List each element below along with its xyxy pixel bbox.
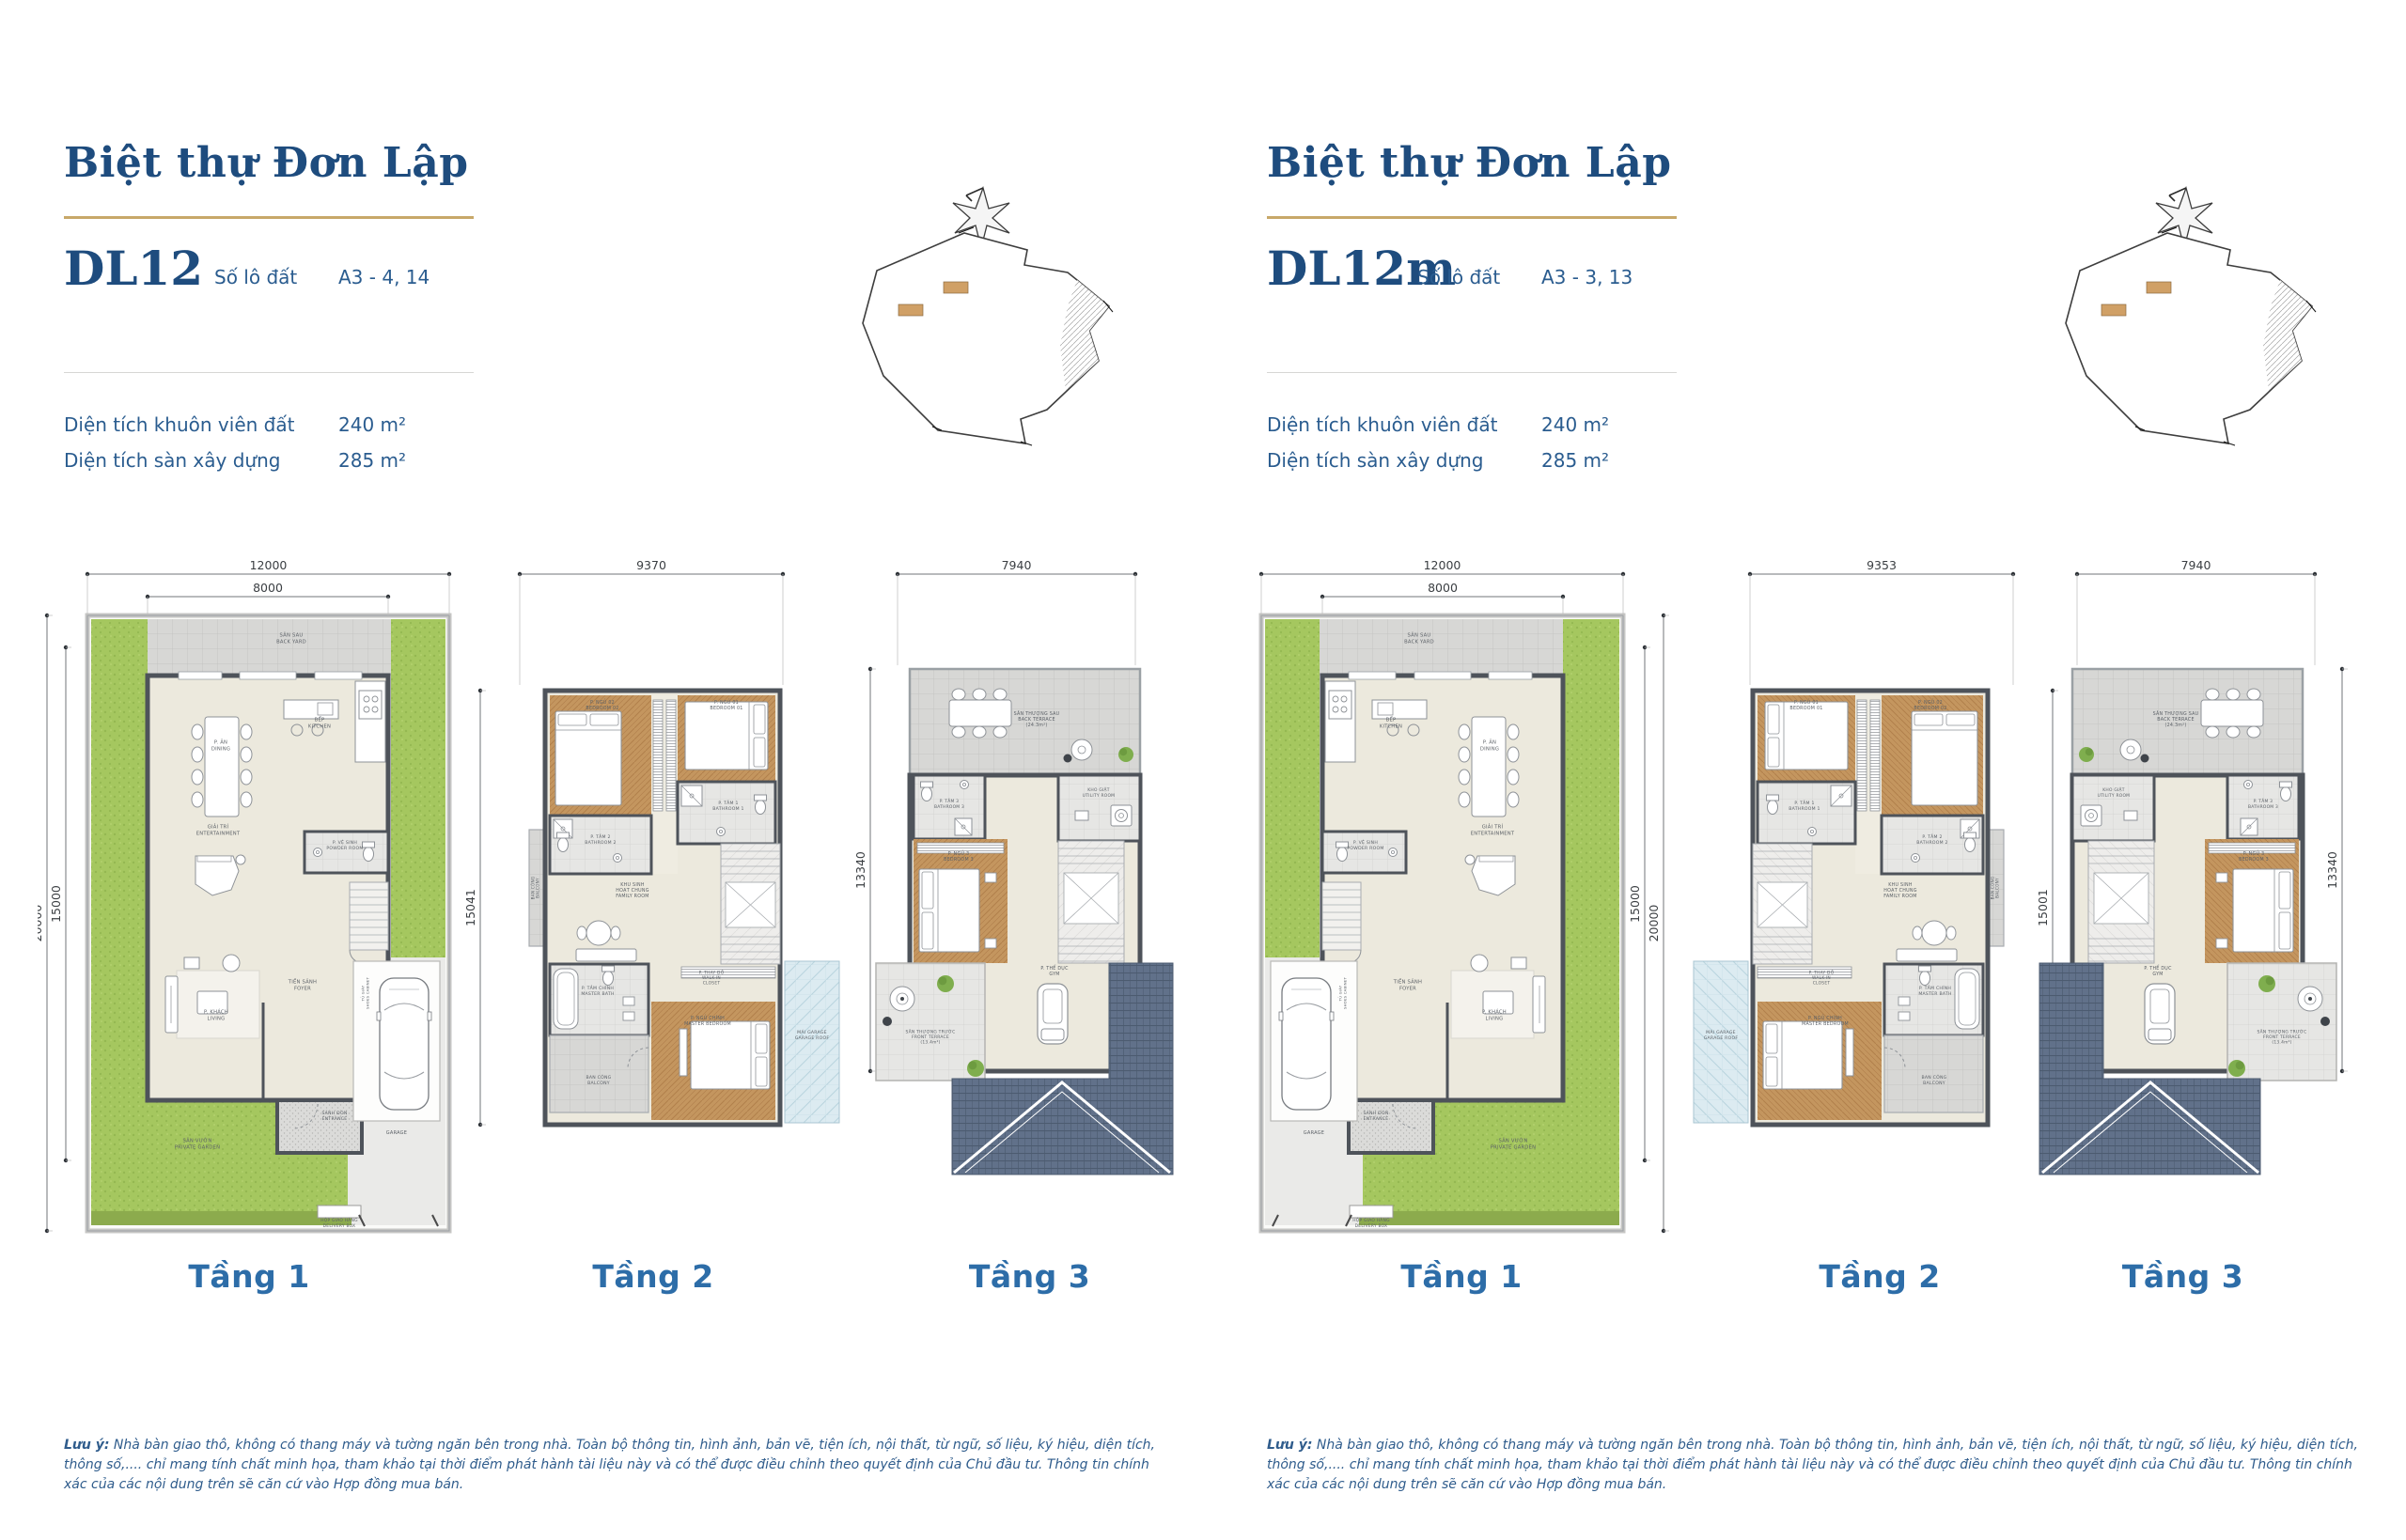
panel-title: Biệt thự Đơn Lập [1267,139,1672,187]
land-area-label: Diện tích khuôn viên đất [1267,413,1497,436]
room-label: P. TẮM CHÍNHMASTER BATH [1918,984,1951,997]
room-label: P. NGỦ 3BEDROOM 3 [944,849,974,863]
room-label: P. NGỦ CHÍNHMASTER BEDROOM [684,1014,731,1027]
lot-number-value: A3 - 3, 13 [1541,266,1633,288]
dimension-horizontal: 8000 [1320,581,1565,615]
label: 7940 [1002,559,1032,572]
dimension-horizontal: 8000 [146,581,390,615]
label: 7940 [2181,559,2211,572]
land-area-value: 240 m² [1541,413,1609,436]
lot-number-label: Số lô đất [214,266,297,288]
plan-svg-tang-1: SÂN SAUBACK YARDBẾPKITCHENP. ĂNDININGGIẢ… [38,559,461,1236]
floor-caption: Tầng 2 [465,1258,841,1295]
divider [1267,372,1677,373]
title-underline [64,216,474,219]
floor-caption: Tầng 1 [38,1258,461,1295]
room-label: SÂN SAUBACK YARD [1404,632,1434,646]
label: 13340 [853,851,867,889]
plan-svg-tang-2: P. NGỦ 02BEDROOM 02P. NGỦ 01BEDROOM 01P.… [465,559,841,1236]
dimension-vertical: 15041 [465,689,486,1127]
room-label: P. NGỦ CHÍNHMASTER BEDROOM [1802,1014,1849,1027]
floor-caption: Tầng 3 [844,1258,1215,1295]
car-icon [377,978,431,1110]
room-label: P. NGỦ 02BEDROOM 02 [586,698,618,711]
dimension-vertical: 20000 [1647,614,1669,1233]
label: 8000 [1428,581,1458,595]
room-label: HỘP GIAO HÀNGDELIVERY BOX [320,1217,358,1229]
room-label: P. ĂNDINING [211,739,230,753]
site-map-svg [825,175,1126,485]
label: 15000 [49,885,63,923]
dimension-horizontal: 7940 [896,559,1137,665]
floor-plan-tang-3: SÂN THƯỢNG SAUBACK TERRACE(24.3m²)P. TẮM… [844,559,1215,1311]
land-area-label: Diện tích khuôn viên đất [64,413,294,436]
plan-svg-tang-3: SÂN THƯỢNG SAUBACK TERRACE(24.3m²)P. TẮM… [1997,559,2368,1236]
floor-area-label: Diện tích sàn xây dựng [64,449,280,472]
room-label: P. KHÁCHLIVING [1482,1009,1507,1022]
lot-number-label: Số lô đất [1417,266,1500,288]
dimension-vertical: 15000 [1628,646,1650,1162]
plan-svg-tang-3: SÂN THƯỢNG SAUBACK TERRACE(24.3m²)P. TẮM… [844,559,1215,1236]
highlighted-lot [944,282,968,293]
floor-caption: Tầng 1 [1250,1258,1673,1295]
label: 20000 [1647,905,1661,942]
highlighted-lot [2101,304,2126,316]
room-label: GARAGE [386,1130,407,1136]
room-label: SẢNH ĐÓNENTRANCE [1363,1109,1388,1122]
room-label: KHU SINHHOẠT CHUNGFAMILY ROOM [1883,882,1916,899]
room-label: P. NGỦ 3BEDROOM 3 [2239,849,2269,863]
label: 12000 [250,559,288,572]
room-label: P. KHÁCHLIVING [204,1009,228,1022]
land-area-value: 240 m² [338,413,406,436]
villa-panel-dl12: Biệt thự Đơn Lập DL12 Số lô đất A3 - 4, … [0,0,1203,1540]
legal-note: Lưu ý: Nhà bàn giao thô, không có thang … [1267,1436,2367,1495]
highlighted-lot [2147,282,2171,293]
floor-plan-tang-1: SÂN SAUBACK YARDBẾPKITCHENP. ĂNDININGGIẢ… [38,559,461,1311]
room-label: BAN CÔNGBALCONY [1921,1074,1946,1086]
label: 9370 [636,559,666,572]
room-label: HỘP GIAO HÀNGDELIVERY BOX [1352,1217,1390,1229]
model-code: DL12 [64,241,203,296]
room-label: BAN CÔNGBALCONY [530,877,539,900]
room-label: P. ĂNDINING [1480,739,1499,753]
dimension-horizontal: 9370 [518,559,785,685]
floor-plan-tang-3: SÂN THƯỢNG SAUBACK TERRACE(24.3m²)P. TẮM… [1997,559,2368,1311]
panel-title: Biệt thự Đơn Lập [64,139,469,187]
floor-area-label: Diện tích sàn xây dựng [1267,449,1483,472]
floor-plan-tang-2: P. NGỦ 02BEDROOM 02P. NGỦ 01BEDROOM 01P.… [465,559,841,1311]
room-label: SÂN SAUBACK YARD [276,632,306,646]
label: 9353 [1867,559,1897,572]
floor-area-value: 285 m² [338,449,406,472]
dimension-horizontal: 7940 [2075,559,2317,665]
title-underline [1267,216,1677,219]
room-label: P. NGỦ 01BEDROOM 01 [1789,698,1822,711]
villa-panel-dl12m: Biệt thự Đơn Lập DL12m Số lô đất A3 - 3,… [1203,0,2406,1540]
floor-plan-tang-1: SÂN SAUBACK YARDBẾPKITCHENP. ĂNDININGGIẢ… [1250,559,1673,1311]
floor-caption: Tầng 3 [1997,1258,2368,1295]
label: 12000 [1424,559,1461,572]
label: 8000 [253,581,283,595]
divider [64,372,474,373]
site-map-svg [2028,175,2329,485]
label: 15041 [465,889,477,926]
legal-note: Lưu ý: Nhà bàn giao thô, không có thang … [64,1436,1164,1495]
dimension-vertical: 13340 [853,667,876,1073]
dimension-horizontal: 9353 [1748,559,2015,685]
room-label: BAN CÔNGBALCONY [586,1074,611,1086]
room-label: P. TẮM CHÍNHMASTER BATH [581,984,614,997]
room-label: SẢNH ĐÓNENTRANCE [321,1109,347,1122]
dimension-vertical: 15000 [49,646,71,1162]
car-icon [1279,978,1334,1110]
room-label: MÁI GARAGEGARAGE ROOF [795,1029,830,1041]
label: 15000 [1628,885,1642,923]
room-label: GARAGE [1304,1130,1324,1136]
lot-number-value: A3 - 4, 14 [338,266,430,288]
label: 20000 [38,905,44,942]
label: 13340 [2325,851,2339,889]
site-location-map [825,175,1126,485]
brochure-page: Biệt thự Đơn Lập DL12 Số lô đất A3 - 4, … [0,0,2406,1540]
floor-area-value: 285 m² [1541,449,1609,472]
plan-svg-tang-1: SÂN SAUBACK YARDBẾPKITCHENP. ĂNDININGGIẢ… [1250,559,1673,1236]
room-label: KHU SINHHOẠT CHUNGFAMILY ROOM [616,882,648,899]
room-label: MÁI GARAGEGARAGE ROOF [1704,1029,1739,1041]
highlighted-lot [898,304,923,316]
room-label: P. NGỦ 01BEDROOM 01 [710,698,742,711]
site-location-map [2028,175,2329,485]
room-label: P. NGỦ 02BEDROOM 02 [1914,698,1946,711]
